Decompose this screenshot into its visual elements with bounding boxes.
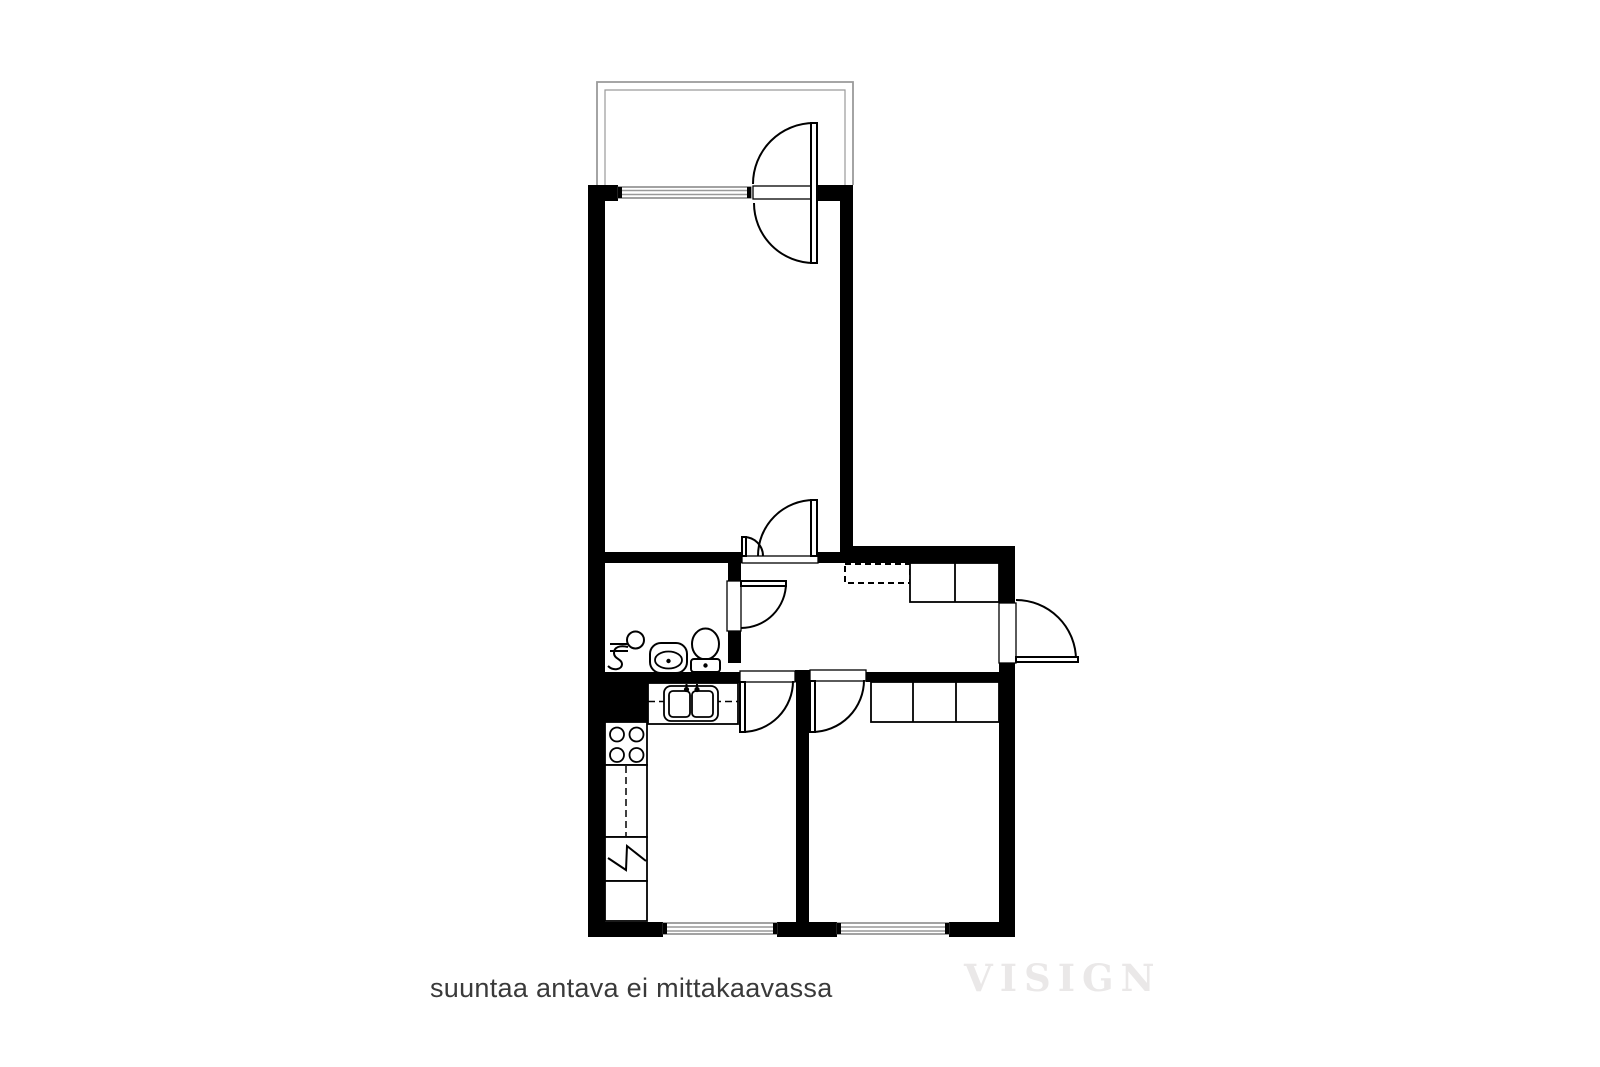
wall-left-exterior bbox=[588, 185, 605, 937]
wall-wing-top bbox=[853, 546, 1015, 563]
floor-drain-icon bbox=[608, 632, 644, 670]
toilet-icon bbox=[691, 629, 720, 673]
window-jamb bbox=[618, 187, 622, 198]
door-leaf bbox=[741, 581, 786, 586]
drain-trap-curve bbox=[608, 646, 628, 669]
overhead-cabinet-dashed bbox=[845, 564, 910, 583]
wall-bathroom-right-upper bbox=[728, 552, 741, 581]
balcony-inner-line bbox=[605, 90, 845, 185]
balcony-door bbox=[753, 123, 817, 263]
bedroom-wardrobe bbox=[871, 682, 999, 722]
window-jamb bbox=[747, 187, 751, 198]
door-swing-arc bbox=[1016, 600, 1076, 660]
door-swing-arc bbox=[742, 681, 793, 732]
window-bedroom bbox=[837, 923, 949, 934]
door-swing-arc bbox=[754, 203, 814, 263]
door-leaf bbox=[740, 682, 745, 732]
floor-plan-canvas bbox=[0, 0, 1600, 1067]
drain-circle bbox=[627, 632, 644, 649]
livingroom-hall-double-door bbox=[742, 500, 818, 563]
window-jamb bbox=[837, 923, 841, 934]
wall-right-below-entrance bbox=[999, 663, 1015, 937]
wardrobe-outline bbox=[871, 682, 999, 722]
wall-bottom-segment-1 bbox=[588, 922, 663, 937]
wall-bottom-segment-3 bbox=[949, 922, 1015, 937]
wall-kitchen-bedroom-partition bbox=[796, 670, 809, 922]
washbasin-icon bbox=[650, 643, 687, 673]
door-leaf bbox=[811, 123, 817, 263]
bathroom-door bbox=[727, 581, 786, 631]
door-swing-arc bbox=[741, 583, 786, 628]
hall-wardrobe bbox=[910, 563, 999, 602]
base-cabinet bbox=[605, 881, 647, 921]
scale-disclaimer-text: suuntaa antava ei mittakaavassa bbox=[430, 973, 833, 1004]
window-jamb bbox=[773, 923, 777, 934]
window-kitchen bbox=[663, 923, 777, 934]
window-frame bbox=[837, 923, 949, 934]
basin-drain-dot bbox=[666, 659, 670, 663]
window-jamb bbox=[945, 923, 949, 934]
floor-plan-page: suuntaa antava ei mittakaavassa VISIGN bbox=[0, 0, 1600, 1067]
duct-shaft bbox=[605, 672, 648, 722]
door-threshold bbox=[740, 671, 795, 682]
hall-overhead-cabinet bbox=[845, 564, 910, 583]
fridge-icon bbox=[605, 837, 647, 881]
door-swing-arc bbox=[753, 123, 814, 184]
wall-right-above-entrance bbox=[999, 546, 1015, 603]
wall-bottom-segment-2 bbox=[777, 922, 837, 937]
kitchen-door bbox=[740, 671, 795, 732]
window-livingroom-top bbox=[618, 187, 751, 198]
bedroom-door bbox=[810, 670, 866, 732]
door-frame bbox=[753, 186, 815, 199]
toilet-bowl bbox=[692, 629, 719, 660]
wall-top-left-jamb bbox=[588, 185, 618, 201]
door-leaf bbox=[1016, 657, 1078, 662]
kitchen-sink-icon bbox=[648, 683, 738, 724]
door-swing-arc bbox=[758, 500, 814, 556]
stove-icon bbox=[605, 722, 647, 765]
entrance-door bbox=[999, 600, 1078, 663]
window-frame bbox=[618, 187, 751, 198]
door-threshold bbox=[810, 670, 866, 681]
toilet-dot bbox=[703, 663, 707, 667]
door-leaf bbox=[810, 681, 815, 732]
wall-hall-bottom-right bbox=[866, 672, 999, 682]
cabinet-cell bbox=[605, 881, 647, 921]
door-frame bbox=[999, 603, 1016, 663]
door-leaf-large bbox=[811, 500, 817, 556]
window-jamb bbox=[663, 923, 667, 934]
wall-livingroom-bottom-left bbox=[605, 552, 742, 563]
visign-watermark: VISIGN bbox=[964, 956, 1161, 1000]
wall-bathroom-right-lower bbox=[728, 631, 741, 663]
wall-livingroom-bottom-right bbox=[818, 552, 853, 563]
door-leaf-small bbox=[742, 537, 746, 556]
window-frame bbox=[663, 923, 777, 934]
door-swing-arc bbox=[812, 680, 864, 732]
door-frame bbox=[727, 581, 741, 631]
door-sill bbox=[742, 556, 818, 563]
wall-livingroom-right bbox=[840, 185, 853, 563]
appliance-reservation bbox=[605, 765, 647, 837]
